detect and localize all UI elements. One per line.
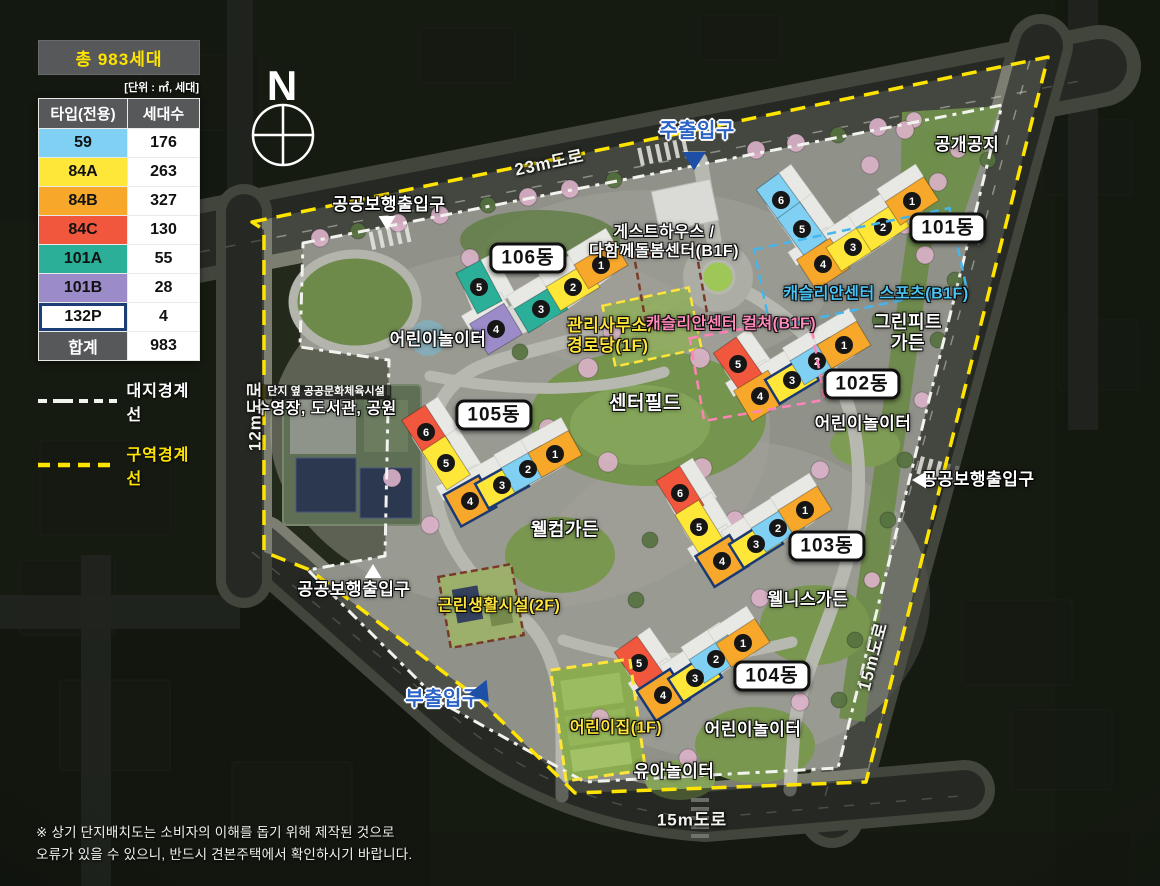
- legend-header-row: 타입(전용) 세대수: [39, 99, 200, 129]
- map-label-welcome-garden: 웰컴가든: [531, 519, 599, 540]
- map-label-casllian-center-sports: 캐슬리안센터 스포츠(B1F): [783, 286, 968, 305]
- map-label-management-office: 관리사무소/ 경로당(1F): [567, 316, 653, 356]
- legend-title: 총 983세대: [38, 40, 200, 75]
- building-pill-104동: 104동: [733, 661, 810, 692]
- entrance-label-sub-entrance: 부출입구: [405, 688, 481, 712]
- legend-count-cell-59: 176: [128, 129, 200, 158]
- legend-type-cell-84B: 84B: [39, 187, 128, 216]
- disclaimer: ※ 상기 단지배치도는 소비자의 이해를 돕기 위해 제작된 것으로 오류가 있…: [36, 822, 412, 865]
- road-label-road-12m: 12m도로: [241, 381, 266, 451]
- map-label-daycare: 어린이집(1F): [570, 720, 662, 739]
- map-label-neighborhood-facility: 근린생활시설(2F): [438, 598, 561, 617]
- map-label-wellness-garden: 웰니스가든: [768, 590, 849, 610]
- map-label-toddler-playground: 유아놀이터: [634, 762, 715, 782]
- legend-table: 타입(전용) 세대수 5917684A26384B32784C130101A55…: [38, 98, 200, 361]
- building-pill-102동: 102동: [823, 369, 900, 400]
- site-plan-stage: 654321543216543215432165432154321 101동10…: [0, 0, 1160, 886]
- map-label-greenfit-garden: 그린피트 가든: [874, 312, 942, 354]
- zone-boundary-legend: 구역경계선: [38, 441, 200, 489]
- map-label-guesthouse-care-center: 게스트하우스 / 다함께돌봄센터(B1F): [589, 224, 739, 262]
- entrance-arrow-pedestrian-gate-sw: [365, 564, 382, 578]
- legend-total-count: 983: [128, 332, 200, 361]
- disclaimer-line1: ※ 상기 단지배치도는 소비자의 이해를 돕기 위해 제작된 것으로: [36, 822, 412, 844]
- map-label-public-sports-note: 단지 옆 공공문화체육시설: [260, 385, 391, 400]
- map-label-kids-playground-e: 어린이놀이터: [815, 414, 912, 434]
- legend-type-cell-101A: 101A: [39, 245, 128, 274]
- map-label-casllian-center-culture: 캐슬리안센터 컬쳐(B1F): [646, 316, 816, 335]
- legend-type-cell-59: 59: [39, 129, 128, 158]
- entrance-label-main-entrance: 주출입구: [659, 120, 735, 144]
- legend-panel: 총 983세대 [단위 : ㎡, 세대] 타입(전용) 세대수 5917684A…: [38, 40, 200, 489]
- zone-boundary-label: 구역경계선: [127, 441, 200, 489]
- site-boundary-sample-line: [38, 397, 117, 405]
- legend-total-row: 합계 983: [39, 332, 200, 361]
- entrance-arrow-pedestrian-gate-nw: [379, 216, 396, 230]
- legend-type-cell-132P: 132P: [39, 303, 128, 332]
- compass-n-label: N: [267, 62, 297, 109]
- building-pill-101동: 101동: [909, 213, 986, 244]
- road-label-road-15m-east: 15m도로: [850, 619, 892, 693]
- legend-count-cell-132P: 4: [128, 303, 200, 332]
- legend-total-label: 합계: [39, 332, 128, 361]
- legend-count-cell-84C: 130: [128, 216, 200, 245]
- legend-type-cell-101B: 101B: [39, 274, 128, 303]
- site-boundary-label: 대지경계선: [127, 377, 200, 425]
- legend-row-101A: 101A55: [39, 245, 200, 274]
- legend-row-59: 59176: [39, 129, 200, 158]
- road-label-road-15m-south: 15m도로: [657, 806, 727, 831]
- legend-count-cell-101B: 28: [128, 274, 200, 303]
- building-pill-106동: 106동: [489, 243, 566, 274]
- building-pill-103동: 103동: [788, 531, 865, 562]
- map-label-kids-playground-nw: 어린이놀이터: [390, 330, 487, 350]
- zone-boundary-sample-line: [38, 461, 117, 469]
- legend-type-cell-84C: 84C: [39, 216, 128, 245]
- map-label-center-field: 센터필드: [609, 393, 681, 415]
- building-pill-105동: 105동: [455, 400, 532, 431]
- legend-row-84C: 84C130: [39, 216, 200, 245]
- legend-count-cell-84B: 327: [128, 187, 200, 216]
- map-label-kids-playground-s: 어린이놀이터: [705, 720, 802, 740]
- entrance-arrow-pedestrian-gate-e: [912, 472, 926, 489]
- compass: N: [225, 52, 345, 182]
- legend-unit-note: [단위 : ㎡, 세대]: [38, 79, 199, 95]
- site-boundary-legend: 대지경계선: [38, 377, 200, 425]
- legend-col-type: 타입(전용): [39, 99, 128, 129]
- road-label-road-23m: 23m도로: [512, 141, 586, 180]
- map-label-pool-library-park: 수영장, 도서관, 공원: [255, 401, 397, 420]
- map-label-open-space: 공개공지: [935, 135, 1000, 155]
- disclaimer-line2: 오류가 있을 수 있으니, 반드시 견본주택에서 확인하시기 바랍니다.: [36, 844, 412, 866]
- entrance-arrow-main-entrance: [682, 152, 706, 171]
- entrance-label-pedestrian-gate-e: 공공보행출입구: [922, 470, 1035, 490]
- legend-row-84A: 84A263: [39, 158, 200, 187]
- legend-row-101B: 101B28: [39, 274, 200, 303]
- entrance-label-pedestrian-gate-sw: 공공보행출입구: [298, 580, 411, 600]
- legend-count-cell-84A: 263: [128, 158, 200, 187]
- legend-row-132P: 132P4: [39, 303, 200, 332]
- legend-type-cell-84A: 84A: [39, 158, 128, 187]
- entrance-label-pedestrian-gate-nw: 공공보행출입구: [333, 195, 446, 215]
- legend-row-84B: 84B327: [39, 187, 200, 216]
- legend-count-cell-101A: 55: [128, 245, 200, 274]
- legend-col-count: 세대수: [128, 99, 200, 129]
